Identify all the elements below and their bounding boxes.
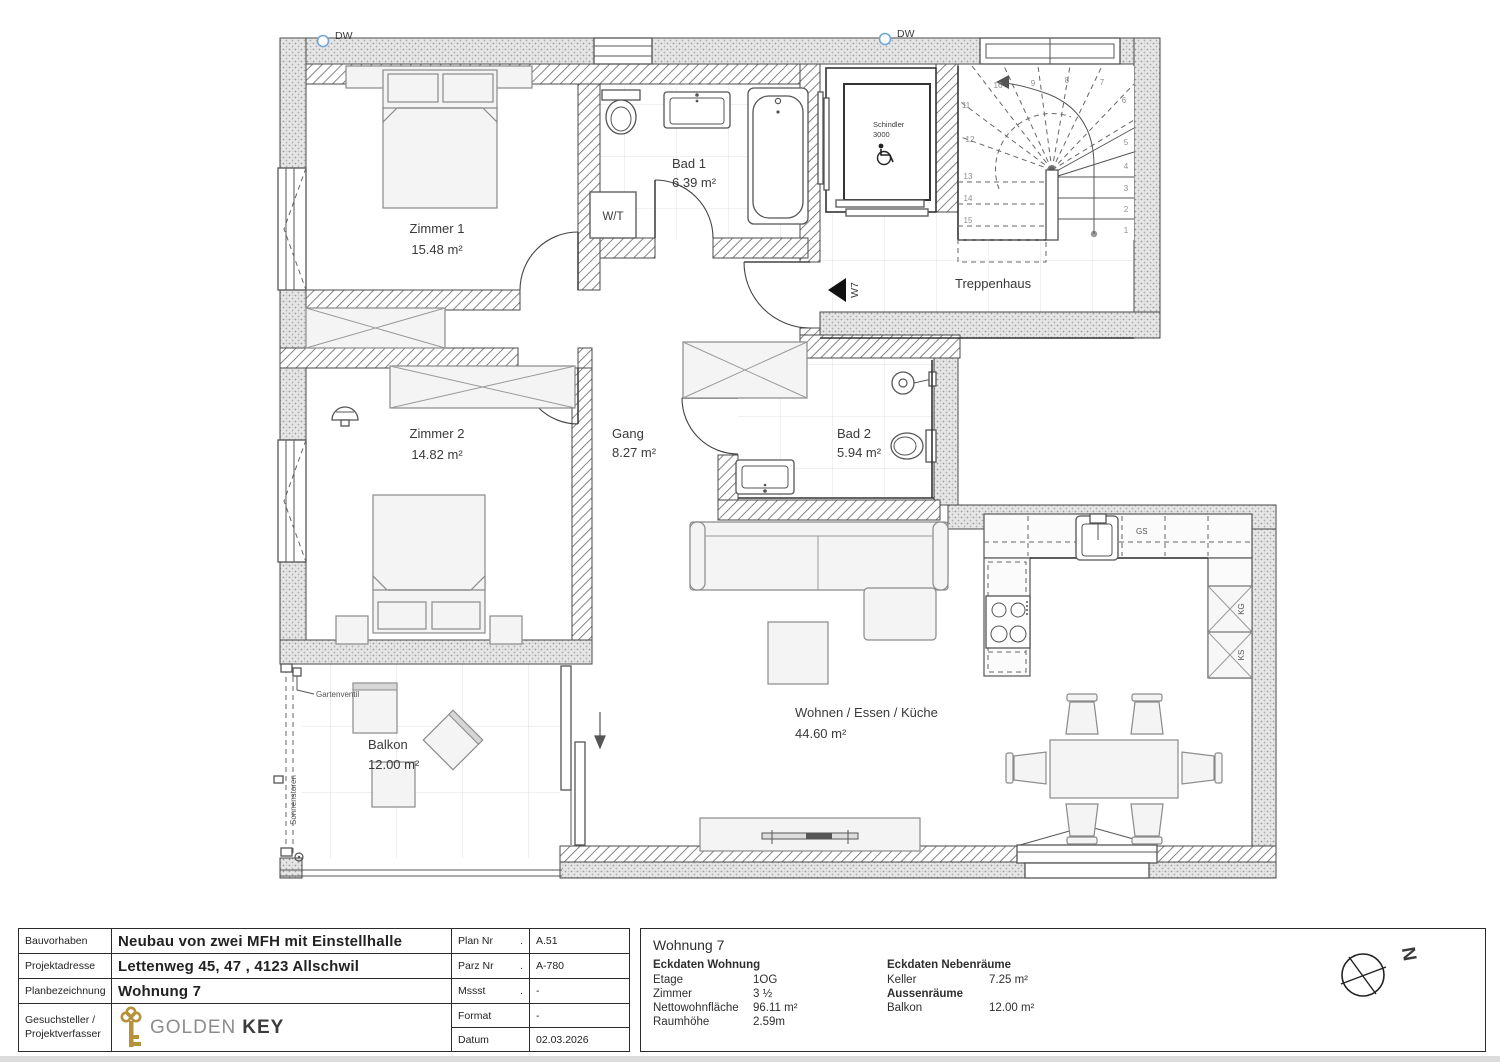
zimmer2-name: Zimmer 2 [410,426,465,441]
zimmer-label: Zimmer [653,988,692,1000]
tb-value-datum: 02.03.2026 [530,1028,629,1051]
wohnen-name: Wohnen / Essen / Küche [795,705,938,720]
elevator-label-1: Schindler [873,120,905,129]
plan-sheet: W7 Schindler 3000 [0,0,1500,1062]
svg-text:7: 7 [1100,78,1105,87]
svg-text:15: 15 [964,216,973,225]
tb-key-datum: Datum [452,1028,530,1051]
ceiling-lamp-icon [332,407,358,426]
ks-label: KS [1237,650,1246,661]
tb-value-mssst: - [530,979,629,1004]
svg-text:11: 11 [962,101,971,110]
nettowohnflaeche-value: 96.11 m² [753,1002,798,1014]
zimmer2-area: 14.82 m² [411,447,463,462]
keller-value: 7.25 m² [989,974,1028,986]
treppenhaus-name: Treppenhaus [955,276,1032,291]
tb-key-format: Format [452,1004,530,1028]
bed-icon [383,70,497,208]
raumhoehe-value: 2.59m [753,1016,785,1028]
svg-text:9: 9 [1031,79,1036,88]
svg-text:14: 14 [964,194,973,203]
svg-text:5: 5 [1124,138,1129,147]
logo-text-golden: GOLDEN [150,1017,236,1039]
goldenkey-key-icon [118,1005,144,1051]
zimmer1-name: Zimmer 1 [410,221,465,236]
zimmer2-furniture [332,366,575,644]
north-label: N [1397,945,1420,962]
kitchen: KG KS GS [984,514,1252,678]
company-logo: GOLDENKEY [112,1004,452,1051]
tb-label-planbezeichnung: Planbezeichnung [19,979,112,1004]
door-entrance [744,262,810,328]
plannr-dot: . [520,935,523,947]
balkon-area: 12.00 m² [368,757,420,772]
floorplan-svg: W7 Schindler 3000 [0,0,1500,910]
keller-label: Keller [887,974,916,986]
tb-label-gesuchsteller: Gesuchsteller / Projektverfasser [19,1004,112,1051]
bad2-area: 5.94 m² [837,445,882,460]
eckdaten-wohnung-header: Eckdaten Wohnung [653,959,760,971]
etage-value: 1OG [753,974,777,986]
wohnen-area: 44.60 m² [795,726,847,741]
balkon-label: Balkon [887,1002,922,1014]
title-block: Bauvorhaben Neubau von zwei MFH mit Eins… [18,928,630,1052]
gang-name: Gang [612,426,644,441]
north-compass-icon: N [1331,935,1431,1007]
dining-table [1050,740,1178,798]
bad1-area: 6.39 m² [672,175,717,190]
door-bad2 [682,398,738,454]
window-stair-top [980,38,1120,64]
window-left-2 [278,440,306,562]
logo-text-key: KEY [242,1017,284,1039]
tb-value-bauvorhaben: Neubau von zwei MFH mit Einstellhalle [112,929,452,954]
eckdaten-nebenraeume-header: Eckdaten Nebenräume [887,959,1011,971]
svg-text:1: 1 [1124,226,1129,235]
svg-text:16: 16 [994,81,1003,90]
tb-key-mssst: Mssst . [452,979,530,1004]
plannr-key: Plan Nr [458,935,493,947]
tb-value-parznr: A-780 [530,954,629,979]
tb-value-projektadresse: Lettenweg 45, 47 , 4123 Allschwil [112,954,452,979]
svg-text:8: 8 [1065,76,1070,85]
window-bad1-top [594,38,652,64]
tv-sideboard [700,818,920,851]
toilet-icon [891,430,936,462]
svg-text:3: 3 [1124,184,1129,193]
sonnenstoren-label: Sonnenstoren [289,775,298,825]
balcony-chair [353,683,397,733]
mssst-key: Mssst [458,985,485,997]
bed-icon [336,495,522,644]
panel-title: Wohnung 7 [653,937,724,953]
tb-value-format: - [530,1004,629,1028]
bad2-name: Bad 2 [837,426,871,441]
aussenraeume-label: Aussenräume [887,988,963,1000]
bad1-name: Bad 1 [672,156,706,171]
svg-text:13: 13 [964,172,973,181]
bathtub-icon [748,88,808,224]
svg-text:2: 2 [1124,205,1129,214]
tb-key-plannr: Plan Nr . [452,929,530,954]
balkon-name: Balkon [368,737,408,752]
svg-text:4: 4 [1124,162,1129,171]
cooktop-icon [986,596,1030,648]
balcony-sliding-door [561,666,605,845]
gang-area: 8.27 m² [612,445,657,460]
door-zimmer1 [520,232,578,290]
parznr-key: Parz Nr [458,960,494,972]
kitchen-sink-icon [1076,514,1118,560]
washer-tumbler-box: W/T [590,192,636,238]
tb-value-plannr: A.51 [530,929,629,954]
zimmer-value: 3 ½ [753,988,772,1000]
svg-text:6: 6 [1122,96,1127,105]
nettowohnflaeche-label: Nettowohnfläche [653,1002,739,1014]
zimmer1-area: 15.48 m² [411,242,463,257]
wardrobe-icon [306,308,445,348]
svg-text:12: 12 [966,135,975,144]
tb-label-projektadresse: Projektadresse [19,954,112,979]
sink-icon [736,460,794,494]
gang-closet [683,342,807,398]
raumhoehe-label: Raumhöhe [653,1016,709,1028]
balkon-value: 12.00 m² [989,1002,1034,1014]
gs-label: GS [1136,527,1148,536]
elevator-label-2: 3000 [873,130,890,139]
elevator: Schindler 3000 [818,68,936,216]
fridge-cabinets: KG KS [1208,586,1252,678]
info-panel: Wohnung 7 Eckdaten Wohnung Etage 1OG Zim… [640,928,1486,1052]
gartenventil-label: Gartenventil [316,690,359,699]
page-edge [0,1056,1500,1062]
window-left-1 [278,168,306,290]
dw-label-1: DW [335,30,353,42]
w7-label: W7 [849,282,861,298]
parznr-dot: . [520,960,523,972]
tb-value-planbezeichnung: Wohnung 7 [112,979,452,1004]
coffee-table [768,622,828,684]
tb-key-parznr: Parz Nr . [452,954,530,979]
dining-set [1006,694,1222,844]
wardrobe-icon [390,366,575,408]
etage-label: Etage [653,974,683,986]
kg-label: KG [1237,603,1246,615]
dw-label-2: DW [897,28,915,40]
tb-label-bauvorhaben: Bauvorhaben [19,929,112,954]
wt-label: W/T [602,211,623,223]
mssst-dot: . [520,985,523,997]
